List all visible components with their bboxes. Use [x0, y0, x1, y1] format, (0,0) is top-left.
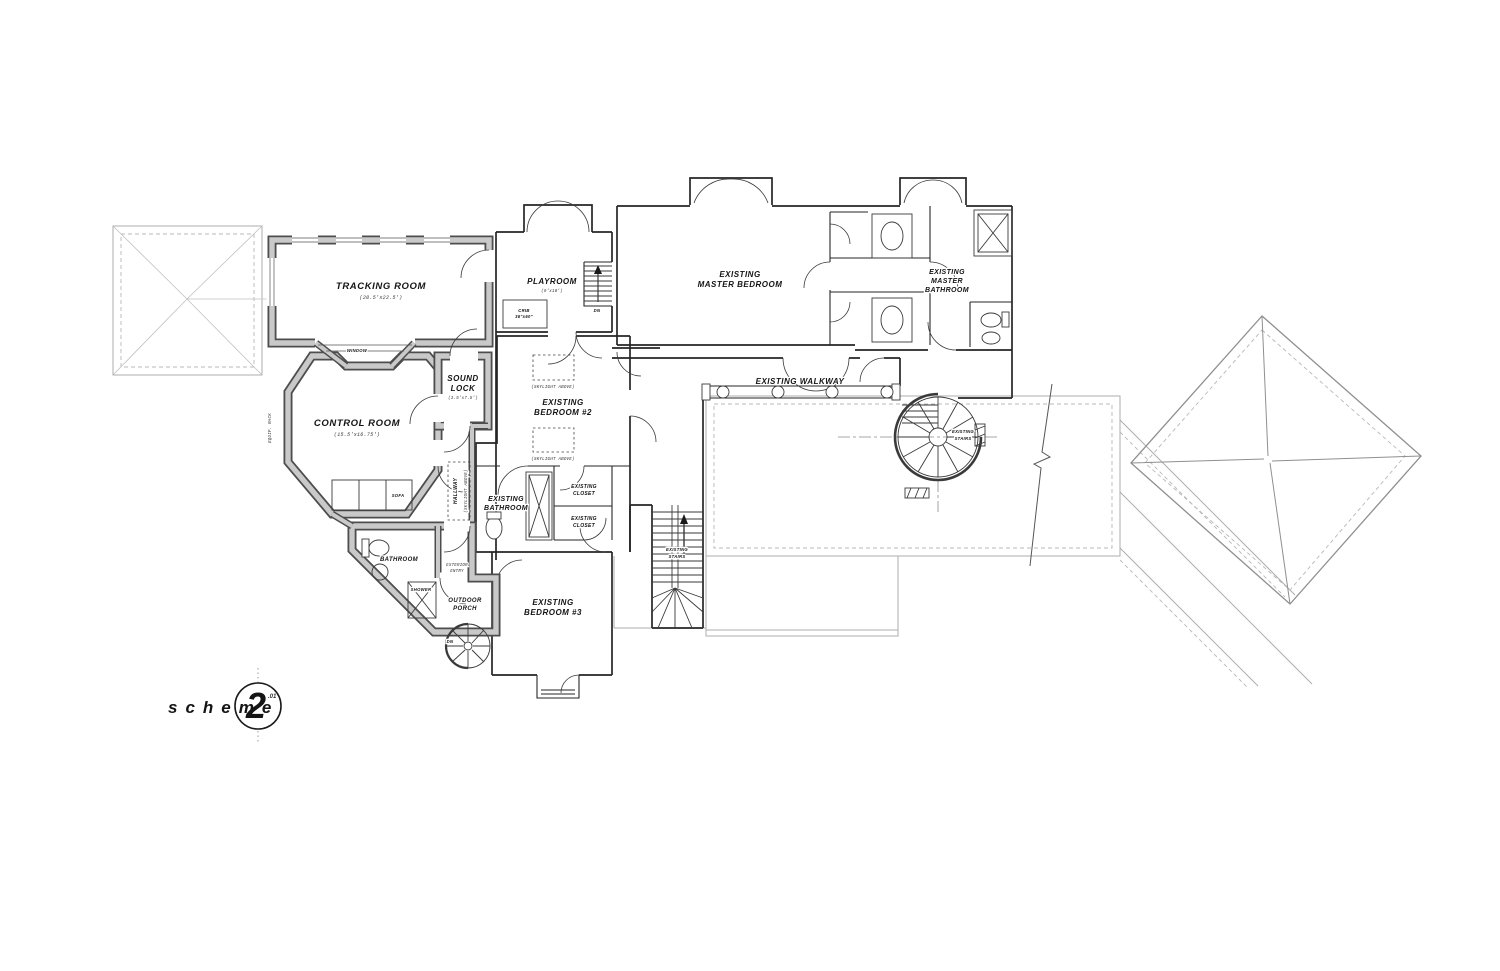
sink	[881, 222, 903, 250]
master-bedroom-label-2: MASTER BEDROOM	[698, 280, 783, 289]
labels: TRACKING ROOM (20.5'x22.5') WINDOW CONTR…	[269, 269, 974, 644]
master-shower	[974, 210, 1012, 256]
skylight-label-1: (SKYLIGHT ABOVE)	[531, 385, 574, 390]
walkway-column	[826, 386, 838, 398]
existing-bathroom-label-2: BATHROOM	[484, 505, 528, 512]
outdoor-porch-label-2: PORCH	[453, 606, 477, 612]
studio-bathroom-label: BATHROOM	[380, 557, 419, 563]
sofa-label: SOFA	[392, 493, 405, 498]
left-roof-outline	[113, 226, 267, 375]
break-line	[1030, 384, 1052, 566]
sound-lock-label-1: SOUND	[447, 374, 478, 383]
skylight-label-2: (SKYLIGHT ABOVE)	[531, 457, 574, 462]
skylight-dashed	[533, 428, 574, 452]
master-bathroom-label-3: BATHROOM	[925, 287, 969, 294]
vanity-counter	[872, 214, 912, 258]
equip-rack-label: EQUIP. RACK	[269, 413, 273, 443]
bedroom3-label-1: EXISTING	[532, 598, 573, 607]
control-room-dims: (15.5'x16.75')	[334, 432, 380, 438]
tracking-room-label: TRACKING ROOM	[336, 281, 427, 292]
control-room-label: CONTROL ROOM	[314, 418, 401, 429]
closet2-label-1: EXISTING	[571, 516, 597, 522]
hallway-label: HALLWAY	[453, 478, 459, 505]
master-bath-vestibule	[900, 178, 966, 205]
bedroom2-label-1: EXISTING	[542, 398, 583, 407]
master-bedroom-label-1: EXISTING	[719, 270, 760, 279]
scheme-number-suffix: .01	[268, 694, 277, 700]
lower-level-outline	[614, 384, 1120, 636]
main-stairs-existing	[652, 505, 703, 628]
sink	[881, 306, 903, 334]
tracking-windows	[267, 235, 451, 307]
sound-lock-label-2: LOCK	[451, 384, 476, 393]
existing-bath-shower	[526, 472, 552, 540]
spiral-stairs-existing	[838, 394, 998, 512]
pyramid-roof-outline	[1131, 316, 1421, 604]
crib-label-2: 36"x60"	[515, 314, 533, 319]
main-stairs-label-1: EXISTING	[666, 547, 688, 552]
spiral-stairs-label-2: STAIRS	[955, 436, 972, 441]
playroom-label: PLAYROOM	[527, 277, 577, 286]
playroom-dn-label: DN	[594, 308, 601, 313]
vanity-counter	[872, 298, 912, 342]
toilet	[981, 313, 1001, 327]
walkway-column	[772, 386, 784, 398]
master-bedroom-vestibule	[690, 178, 772, 205]
outdoor-porch-label-1: OUTDOOR	[448, 598, 482, 604]
master-bathroom-label-2: MASTER	[931, 278, 963, 285]
scheme-number: 2	[245, 685, 266, 726]
sink	[982, 332, 1000, 344]
playroom-entry-vestibule	[524, 205, 592, 232]
crib-label-1: CRIB	[518, 308, 529, 313]
toilet	[369, 540, 389, 556]
existing-house-walls	[476, 178, 1012, 698]
master-bathroom-label-1: EXISTING	[929, 269, 965, 276]
bedroom2-label-2: BEDROOM #2	[534, 408, 592, 417]
window-label: WINDOW	[347, 348, 368, 353]
scheme-title: scheme 2 .01	[168, 668, 281, 744]
playroom-stairs	[584, 265, 612, 302]
spiral-stairs-label-1: EXISTING	[952, 429, 974, 434]
walkway-column	[717, 386, 729, 398]
existing-bathroom-label-1: EXISTING	[488, 496, 524, 503]
closet1-label-1: EXISTING	[571, 484, 597, 490]
shower-label: SHOWER	[411, 587, 432, 592]
main-stairs-label-2: STAIRS	[669, 554, 686, 559]
sound-lock-dims: (3.5'x7.5')	[448, 396, 478, 401]
exterior-entry-label-1: EXTERIOR	[446, 564, 468, 568]
toilet	[486, 517, 502, 539]
porch-spiral-stairs	[446, 624, 490, 668]
exterior-entry-label-2: ENTRY	[450, 570, 464, 574]
closet1-label-2: CLOSET	[573, 491, 596, 497]
hallway-note: (SKYLIGHT ABOVE)	[464, 469, 469, 512]
floor-plan-canvas: TRACKING ROOM (20.5'x22.5') WINDOW CONTR…	[0, 0, 1500, 971]
porch-dn-label: DN	[447, 639, 454, 644]
bedroom3-window-bay	[537, 675, 579, 698]
skylight-dashed	[533, 355, 574, 380]
tracking-room-dims: (20.5'x22.5')	[360, 295, 403, 301]
closet2-label-2: CLOSET	[573, 523, 596, 529]
walkway-label: EXISTING WALKWAY	[756, 377, 845, 386]
bedroom3-label-2: BEDROOM #3	[524, 608, 582, 617]
walkway-column	[881, 386, 893, 398]
playroom-dims: (9'x10')	[541, 289, 563, 294]
